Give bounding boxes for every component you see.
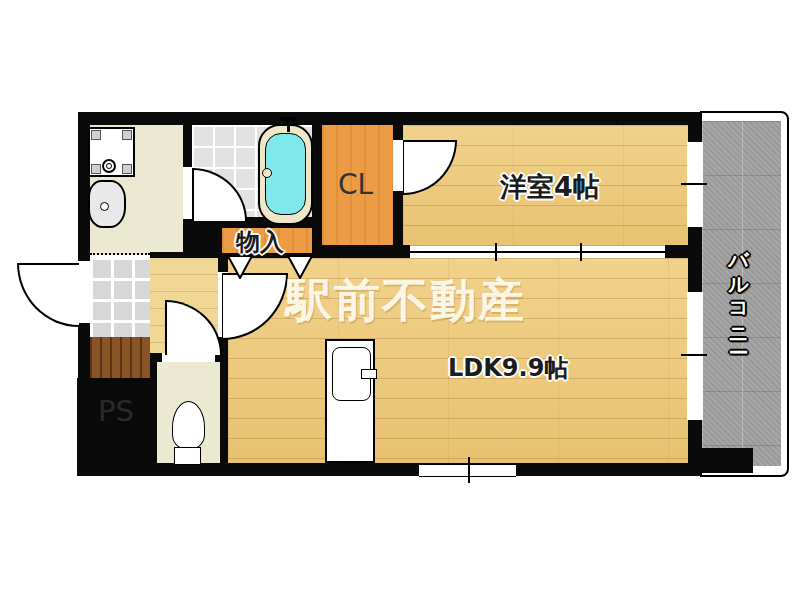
room-label-yoshitsu: 洋室4帖 [500,169,600,205]
sliding-door-tick-2 [580,243,582,261]
room-label-monoire: 物入 [236,226,284,258]
room-label-ps: PS [98,394,134,428]
room-label-balcony: バルコニー [726,238,753,368]
room-label-ldk: LDK9.9帖 [448,352,568,384]
toilet-tank [174,447,201,465]
room-label-closet: CL [338,168,373,201]
wall-top [78,112,700,125]
folding-door-icon-1 [227,255,253,279]
entrance-threshold-dotted-line [90,253,150,255]
wall-toilet-right [220,353,228,463]
entry-door-arc [17,263,79,327]
window-yoshitsu-tick [681,183,707,185]
window-ldk [687,292,703,420]
bathtub [258,124,313,225]
wall-partition-left-stub [322,245,410,258]
bathroom-door-opening [183,167,192,219]
wall-left-lower [78,323,90,378]
bathtub-faucet-stem [287,117,290,132]
sliding-door-track [410,251,665,253]
wall-closet-left [312,125,322,258]
entrance-tiles [90,257,150,337]
wall-partition-right-stub [665,245,700,258]
washbasin [88,180,126,228]
floor-plan: 洋室4帖 LDK9.9帖 CL 物入 PS バルコニー 駅前不動産 [0,0,800,600]
sliding-door-tick-1 [495,243,497,261]
window-ldk-tick [681,354,707,356]
entry-opening [78,261,90,323]
closet-door-opening [393,140,403,191]
kitchen-faucet-icon [361,369,377,379]
kitchen-counter [325,339,375,463]
wall-hall-chunk [183,228,222,258]
entrance-step [90,337,150,378]
wall-toilet-left [150,362,157,467]
wall-ldk-corner-block [693,448,753,473]
watermark-text: 駅前不動産 [286,270,526,332]
washing-machine-pan [88,127,135,177]
window-bottom-tick [468,457,470,483]
toilet-bowl [172,401,205,449]
